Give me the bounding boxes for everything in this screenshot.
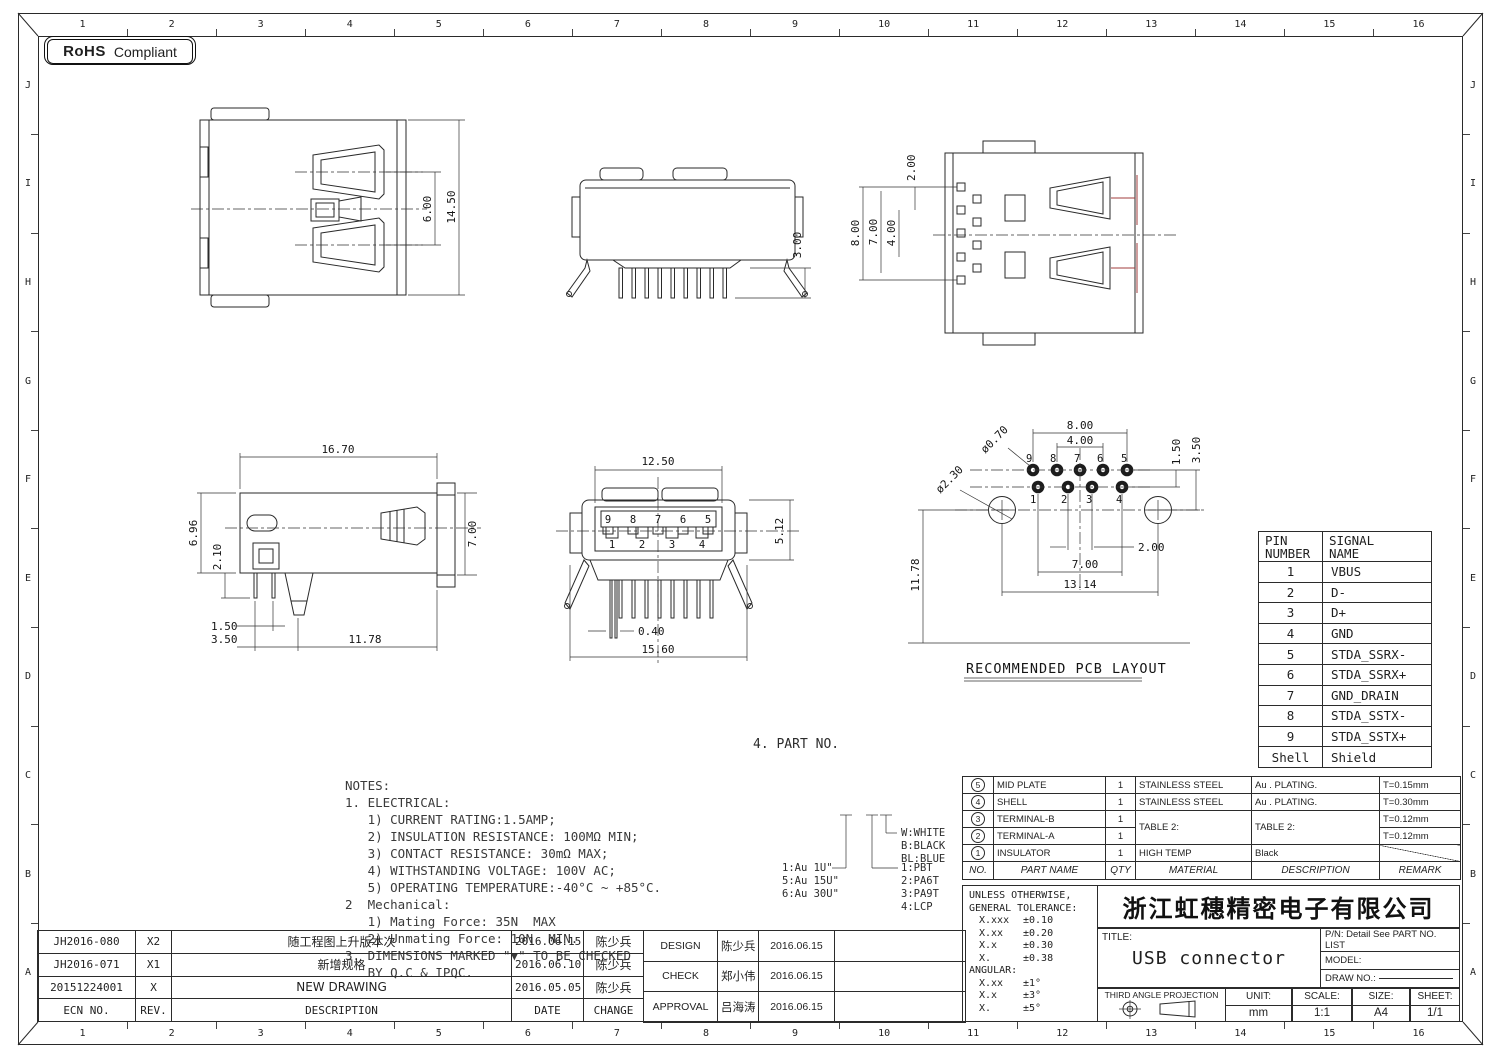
bom-name-cell: INSULATOR: [994, 845, 1106, 862]
grid-row-label: H: [1463, 233, 1483, 332]
approval-role-cell: CHECK: [644, 961, 718, 992]
note-line: NOTES:: [345, 777, 661, 794]
tolerance-row: X.xx±1°: [969, 978, 1097, 991]
dim-2.00: 2.00: [1138, 541, 1165, 554]
pin-number-cell: 3: [1259, 603, 1323, 624]
dim-16.70: 16.70: [321, 443, 354, 456]
revision-header: CHANGE: [584, 999, 644, 1022]
approval-row: APPROVAL 吕海涛 2016.06.15: [644, 992, 966, 1023]
grid-col-label: 2: [127, 13, 216, 36]
grid-row-label: E: [1463, 529, 1483, 628]
view-top-drawing: 6.00 14.50: [185, 95, 495, 350]
title-area: TITLE: USB connector: [1097, 928, 1321, 988]
approval-name-cell: 吕海涛: [718, 992, 759, 1023]
pin-label: 7: [1074, 453, 1080, 465]
signal-name-cell: GND: [1323, 623, 1432, 644]
grid-col-label: 4: [305, 1022, 394, 1045]
pin-label: 1: [1030, 494, 1036, 506]
grid-col-label: 2: [127, 1022, 216, 1045]
signal-name-cell: VBUS: [1323, 562, 1432, 583]
dim-7.00: 7.00: [466, 521, 479, 548]
dim-5.12: 5.12: [773, 518, 786, 545]
bom-no-cell: 3: [963, 811, 994, 828]
grid-col-label: 9: [751, 1022, 840, 1045]
grid-col-label: 15: [1285, 1022, 1374, 1045]
dim-0.40: 0.40: [638, 625, 665, 638]
bom-material-cell: STAINLESS STEEL: [1136, 794, 1252, 811]
grid-col-label: 3: [216, 13, 305, 36]
grid-row-label: G: [1463, 332, 1483, 431]
view-rear-drawing: 3.00: [555, 125, 825, 335]
grid-row-label: I: [18, 135, 38, 234]
side-view-body: [240, 483, 455, 615]
note-line: 3) CONTACT RESISTANCE: 30mΩ MAX;: [345, 845, 661, 862]
pcb-layout-title: RECOMMENDED PCB LAYOUT: [966, 661, 1167, 677]
dim-8.00: 8.00: [849, 220, 862, 247]
tolerance-row: X.xxx±0.10: [969, 915, 1097, 928]
bom-material-cell: STAINLESS STEEL: [1136, 777, 1252, 794]
grid-row-label: D: [18, 628, 38, 727]
approval-name-cell: 郑小伟: [718, 961, 759, 992]
grid-col-label: 6: [483, 1022, 572, 1045]
bom-name-cell: SHELL: [994, 794, 1106, 811]
revision-row: JH2016-080 X2 随工程图上升版本次 2016.06.15 陈少兵: [38, 931, 644, 954]
pin-number-cell: Shell: [1259, 747, 1323, 768]
material-option: 4:LCP: [901, 901, 933, 913]
material-option: 2:PA6T: [901, 875, 940, 887]
revision-table: JH2016-080 X2 随工程图上升版本次 2016.06.15 陈少兵 J…: [37, 930, 644, 1022]
pcb-title-underline: [964, 678, 1142, 681]
pn-row: P/N: Detail See PART NO. LIST: [1321, 929, 1459, 952]
view-side-drawing: 16.70 6.96 2.10 7.00 1.50 3.50 11.78: [185, 435, 495, 680]
signal-name-cell: STDA_SSRX-: [1323, 644, 1432, 665]
change-cell: 陈少兵: [584, 931, 644, 954]
pin-table-row: 8 STDA_SSTX-: [1259, 706, 1432, 727]
dim-3.00: 3.00: [791, 232, 804, 259]
company-name: 浙江虹穗精密电子有限公司: [1097, 885, 1460, 928]
grid-col-label: 10: [840, 13, 929, 36]
note-line: 2) INSULATION RESISTANCE: 100MΩ MIN;: [345, 828, 661, 845]
signal-name-cell: GND_DRAIN: [1323, 685, 1432, 706]
dim-12.50: 12.50: [641, 455, 674, 468]
approval-row: CHECK 郑小伟 2016.06.15: [644, 961, 966, 992]
dim-11.78: 11.78: [348, 633, 381, 646]
revision-header: DESCRIPTION: [172, 999, 512, 1022]
grid-col-label: 7: [572, 1022, 661, 1045]
approval-empty-cell: [835, 961, 966, 992]
rohs-badge: RoHS Compliant: [44, 36, 196, 65]
dim-2.10: 2.10: [211, 544, 224, 571]
ecn-no-cell: JH2016-080: [38, 931, 136, 954]
rev-cell: X: [136, 976, 172, 999]
bom-remark-diagonal: [1380, 845, 1461, 862]
rev-cell: X2: [136, 931, 172, 954]
dim-15.60: 15.60: [641, 643, 674, 656]
ecn-no-cell: 20151224001: [38, 976, 136, 999]
grid-band-bottom: 12345678910111213141516: [38, 1022, 1463, 1045]
change-cell: 陈少兵: [584, 953, 644, 976]
bom-name-cell: MID PLATE: [994, 777, 1106, 794]
grid-col-label: 14: [1196, 13, 1285, 36]
bom-desc-cell: TABLE 2:: [1252, 811, 1380, 845]
date-cell: 2016.05.05: [512, 976, 584, 999]
note-line: 4) WITHSTANDING VOLTAGE: 100V AC;: [345, 862, 661, 879]
grid-col-label: 4: [305, 13, 394, 36]
tolerance-row: X.x±0.30: [969, 940, 1097, 953]
grid-row-label: J: [1463, 36, 1483, 135]
revision-header: REV.: [136, 999, 172, 1022]
pin-number-cell: 2: [1259, 582, 1323, 603]
approval-empty-cell: [835, 992, 966, 1023]
title-label: TITLE:: [1098, 929, 1320, 943]
grid-col-label: 16: [1374, 1022, 1463, 1045]
description-cell: 新增规格: [172, 953, 512, 976]
ecn-no-cell: JH2016-071: [38, 953, 136, 976]
approval-name-cell: 陈少兵: [718, 931, 759, 962]
grid-row-label: F: [18, 430, 38, 529]
grid-row-label: D: [1463, 628, 1483, 727]
revision-header: DATE: [512, 999, 584, 1022]
dim-7.00: 7.00: [867, 219, 880, 246]
tolerance-line: UNLESS OTHERWISE,: [969, 890, 1097, 903]
note-line: 1) CURRENT RATING:1.5AMP;: [345, 811, 661, 828]
dim-2.00: 2.00: [905, 155, 918, 182]
view-bottom-drawing: 8.00 7.00 4.00 2.00: [845, 125, 1185, 355]
bom-material-cell: TABLE 2:: [1136, 811, 1252, 845]
scale-label: SCALE:: [1293, 989, 1351, 1006]
grid-col-label: 11: [929, 13, 1018, 36]
tolerance-row: X.±5°: [969, 1003, 1097, 1016]
bom-header: REMARK: [1380, 862, 1461, 879]
revision-header: ECN NO.: [38, 999, 136, 1022]
pcb-pin-numbers: 9 8 7 6 5 1 2 3 4: [1026, 453, 1127, 506]
grid-row-label: A: [1463, 923, 1483, 1022]
bom-qty-cell: 1: [1106, 794, 1136, 811]
bottom-view-red-lines: [1111, 175, 1137, 293]
grid-col-label: 5: [394, 13, 483, 36]
bom-header: NO.: [963, 862, 994, 879]
bom-name-cell: TERMINAL-A: [994, 828, 1106, 845]
bom-remark-cell: T=0.12mm: [1380, 811, 1461, 828]
size-cell: SIZE: A4: [1352, 988, 1410, 1022]
date-cell: 2016.06.10: [512, 953, 584, 976]
pin-number-header: PINNUMBER: [1259, 532, 1323, 562]
pin-number-cell: 1: [1259, 562, 1323, 583]
plating-option: 6:Au 30U": [782, 888, 839, 900]
pin-number-cell: 9: [1259, 726, 1323, 747]
pin-label: 4: [699, 539, 705, 551]
bom-desc-cell: Au . PLATING.: [1252, 794, 1380, 811]
revision-row: 20151224001 X NEW DRAWING 2016.05.05 陈少兵: [38, 976, 644, 999]
tolerance-block: UNLESS OTHERWISE, GENERAL TOLERANCE: X.x…: [962, 885, 1098, 1022]
approval-date-cell: 2016.06.15: [759, 931, 835, 962]
bom-remark-cell: T=0.30mm: [1380, 794, 1461, 811]
grid-col-label: 6: [483, 13, 572, 36]
pin-number-cell: 7: [1259, 685, 1323, 706]
part-no-tree: 1:Au 1U" 5:Au 15U" 6:Au 30U" W:WHITE B:B…: [780, 800, 970, 925]
bom-qty-cell: 1: [1106, 811, 1136, 828]
grid-row-label: H: [18, 233, 38, 332]
front-view-body: [565, 488, 753, 638]
drawing-sheet: 12345678910111213141516 1234567891011121…: [0, 0, 1502, 1059]
part-no-tree-labels: 1:Au 1U" 5:Au 15U" 6:Au 30U" W:WHITE B:B…: [782, 827, 946, 913]
grid-col-label: 10: [840, 1022, 929, 1045]
tolerance-line: GENERAL TOLERANCE:: [969, 903, 1097, 916]
tolerance-row: X.±0.38: [969, 953, 1097, 966]
pcb-leaders: [960, 448, 1030, 519]
pin-label: 5: [705, 514, 711, 526]
signal-name-header: SIGNALNAME: [1323, 532, 1432, 562]
scale-cell: SCALE: 1:1: [1292, 988, 1352, 1022]
bom-qty-cell: 1: [1106, 777, 1136, 794]
pin-table-row: 6 STDA_SSRX+: [1259, 664, 1432, 685]
pin-label: 2: [639, 539, 645, 551]
grid-col-label: 3: [216, 1022, 305, 1045]
dim-4.00: 4.00: [885, 220, 898, 247]
note-line: 2 Mechanical:: [345, 896, 661, 913]
label-dia-2.30: ø2.30: [933, 463, 966, 496]
pin-label: 9: [605, 514, 611, 526]
grid-band-left: JIHGFEDCBA: [18, 36, 38, 1022]
view-pcb-layout: 9 8 7 6 5 1 2 3 4: [900, 400, 1240, 690]
approval-row: DESIGN 陈少兵 2016.06.15: [644, 931, 966, 962]
grid-col-label: 1: [38, 1022, 127, 1045]
projection-label: THIRD ANGLE PROJECTION: [1098, 989, 1225, 1000]
front-view-centerlines: [556, 477, 802, 663]
rev-cell: X1: [136, 953, 172, 976]
pin-number-cell: 8: [1259, 706, 1323, 727]
pin-label: 8: [1050, 453, 1056, 465]
pin-table-row: 5 STDA_SSRX-: [1259, 644, 1432, 665]
pin-table-row: 3 D+: [1259, 603, 1432, 624]
grid-row-label: J: [18, 36, 38, 135]
signal-name-cell: STDA_SSTX-: [1323, 706, 1432, 727]
dim-13.14: 13.14: [1063, 578, 1096, 591]
dim-7.00: 7.00: [1072, 558, 1099, 571]
approval-date-cell: 2016.06.15: [759, 961, 835, 992]
dim-4.00: 4.00: [1067, 434, 1094, 447]
bom-remark-cell: T=0.12mm: [1380, 828, 1461, 845]
size-value: A4: [1353, 1006, 1409, 1022]
pin-number-cell: 6: [1259, 664, 1323, 685]
projection-cell: THIRD ANGLE PROJECTION: [1097, 988, 1226, 1022]
plating-option: 5:Au 15U": [782, 875, 839, 887]
bom-desc-cell: Black: [1252, 845, 1380, 862]
pin-label: 3: [1086, 494, 1092, 506]
material-option: 3:PA9T: [901, 888, 940, 900]
dim-14.50: 14.50: [445, 190, 458, 223]
bom-material-cell: HIGH TEMP: [1136, 845, 1252, 862]
bom-name-cell: TERMINAL-B: [994, 811, 1106, 828]
bom-header: PART NAME: [994, 862, 1106, 879]
bom-no-cell: 1: [963, 845, 994, 862]
grid-col-label: 12: [1018, 1022, 1107, 1045]
grid-row-label: B: [1463, 825, 1483, 924]
pin-label: 3: [669, 539, 675, 551]
revision-header-row: ECN NO. REV. DESCRIPTION DATE CHANGE: [38, 999, 644, 1022]
size-label: SIZE:: [1353, 989, 1409, 1006]
grid-col-label: 5: [394, 1022, 483, 1045]
bom-desc-cell: Au . PLATING.: [1252, 777, 1380, 794]
bom-header: MATERIAL: [1136, 862, 1252, 879]
color-option: W:WHITE: [901, 827, 945, 839]
pin-label: 8: [630, 514, 636, 526]
revision-row: JH2016-071 X1 新增规格 2016.06.10 陈少兵: [38, 953, 644, 976]
unit-cell: UNIT: mm: [1225, 988, 1292, 1022]
bom-header-row: NO. PART NAME QTY MATERIAL DESCRIPTION R…: [963, 862, 1461, 879]
pin-signal-table: PINNUMBER SIGNALNAME 1 VBUS 2 D- 3 D+ 4 …: [1258, 531, 1432, 768]
dim-6.96: 6.96: [187, 520, 200, 547]
third-angle-projection-symbol: [1098, 1000, 1225, 1020]
part-no-heading: 4. PART NO.: [753, 737, 839, 752]
approval-empty-cell: [835, 931, 966, 962]
grid-col-label: 16: [1374, 13, 1463, 36]
pin-table-row: 9 STDA_SSTX+: [1259, 726, 1432, 747]
dim-1.50: 1.50: [211, 620, 238, 633]
bom-qty-cell: 1: [1106, 828, 1136, 845]
pin-table-row: 2 D-: [1259, 582, 1432, 603]
bom-header: DESCRIPTION: [1252, 862, 1380, 879]
approval-role-cell: DESIGN: [644, 931, 718, 962]
bom-table: 5 MID PLATE 1 STAINLESS STEEL Au . PLATI…: [962, 776, 1461, 880]
tolerance-row: X.x±3°: [969, 990, 1097, 1003]
grid-col-label: 13: [1107, 1022, 1196, 1045]
signal-name-cell: Shield: [1323, 747, 1432, 768]
pin-label: 4: [1116, 494, 1122, 506]
grid-col-label: 8: [661, 13, 750, 36]
grid-band-top: 12345678910111213141516: [38, 13, 1463, 36]
top-view-centerlines: [191, 172, 427, 245]
signal-name-cell: STDA_SSRX+: [1323, 664, 1432, 685]
grid-col-label: 14: [1196, 1022, 1285, 1045]
approval-date-cell: 2016.06.15: [759, 992, 835, 1023]
grid-row-label: E: [18, 529, 38, 628]
color-option: B:BLACK: [901, 840, 946, 852]
rohs-text: Compliant: [114, 44, 177, 60]
grid-row-label: I: [1463, 135, 1483, 234]
scale-value: 1:1: [1293, 1006, 1351, 1022]
grid-col-label: 1: [38, 13, 127, 36]
pin-label: 9: [1026, 453, 1032, 465]
pin-table-row: 4 GND: [1259, 623, 1432, 644]
bom-row: 1 INSULATOR 1 HIGH TEMP Black: [963, 845, 1461, 862]
change-cell: 陈少兵: [584, 976, 644, 999]
side-view-dimension-lines: [197, 453, 477, 651]
approvals-table: DESIGN 陈少兵 2016.06.15 CHECK 郑小伟 2016.06.…: [643, 930, 966, 1023]
grid-row-label: F: [1463, 430, 1483, 529]
bom-qty-cell: 1: [1106, 845, 1136, 862]
grid-row-label: A: [18, 923, 38, 1022]
front-view-dimension-lines: [570, 466, 794, 661]
note-line: 5) OPERATING TEMPERATURE:-40°C ~ +85°C.: [345, 879, 661, 896]
signal-name-cell: D-: [1323, 582, 1432, 603]
dim-6.00: 6.00: [421, 196, 434, 223]
dim-8.00: 8.00: [1067, 419, 1094, 432]
material-option: 1:PBT: [901, 862, 933, 874]
dim-3.50: 3.50: [211, 633, 238, 646]
rear-view-body: [567, 168, 808, 298]
grid-col-label: 15: [1285, 13, 1374, 36]
grid-col-label: 13: [1107, 13, 1196, 36]
model-row: MODEL:: [1321, 952, 1459, 970]
sheet-value: 1/1: [1411, 1006, 1459, 1022]
pin-table-header-row: PINNUMBER SIGNALNAME: [1259, 532, 1432, 562]
bom-header: QTY: [1106, 862, 1136, 879]
bom-row: 5 MID PLATE 1 STAINLESS STEEL Au . PLATI…: [963, 777, 1461, 794]
signal-name-cell: STDA_SSTX+: [1323, 726, 1432, 747]
unit-value: mm: [1226, 1006, 1291, 1022]
pin-table-row: Shell Shield: [1259, 747, 1432, 768]
dim-1.50: 1.50: [1170, 439, 1183, 466]
sheet-label: SHEET:: [1411, 989, 1459, 1006]
grid-col-label: 7: [572, 13, 661, 36]
angular-label: ANGULAR:: [969, 965, 1097, 978]
description-cell: 随工程图上升版本次: [172, 931, 512, 954]
dim-3.50: 3.50: [1190, 437, 1203, 464]
part-number-column: P/N: Detail See PART NO. LIST MODEL: DRA…: [1320, 928, 1460, 988]
grid-row-label: C: [1463, 726, 1483, 825]
pin-label: 6: [680, 514, 686, 526]
date-cell: 2016.06.15: [512, 931, 584, 954]
pin-table-row: 7 GND_DRAIN: [1259, 685, 1432, 706]
plating-option: 1:Au 1U": [782, 862, 833, 874]
bom-remark-cell: T=0.15mm: [1380, 777, 1461, 794]
pin-number-cell: 4: [1259, 623, 1323, 644]
grid-row-label: G: [18, 332, 38, 431]
draw-no-blank-line: [1379, 978, 1453, 979]
drawing-title: USB connector: [1098, 948, 1320, 969]
description-cell: NEW DRAWING: [172, 976, 512, 999]
grid-row-label: B: [18, 825, 38, 924]
grid-col-label: 12: [1018, 13, 1107, 36]
bom-no-cell: 4: [963, 794, 994, 811]
pin-number-cell: 5: [1259, 644, 1323, 665]
pin-label: 7: [655, 514, 661, 526]
view-front-drawing: 9 8 7 6 5 1 2 3 4 12.50 5.12 0.40 15.60: [550, 445, 810, 680]
part-no-tree-lines: [832, 815, 898, 868]
unit-label: UNIT:: [1226, 989, 1291, 1006]
bom-no-cell: 5: [963, 777, 994, 794]
grid-col-label: 8: [661, 1022, 750, 1045]
pin-label: 6: [1097, 453, 1103, 465]
bom-row: 4 SHELL 1 STAINLESS STEEL Au . PLATING. …: [963, 794, 1461, 811]
sheet-cell: SHEET: 1/1: [1410, 988, 1460, 1022]
bottom-view-body: [945, 141, 1143, 345]
label-dia-0.70: ø0.70: [978, 423, 1011, 456]
note-line: 1) Mating Force: 35N MAX: [345, 913, 661, 930]
signal-name-cell: D+: [1323, 603, 1432, 624]
bom-row: 3 TERMINAL-B 1 TABLE 2: TABLE 2: T=0.12m…: [963, 811, 1461, 828]
pin-label: 2: [1061, 494, 1067, 506]
dim-11.78: 11.78: [909, 558, 922, 591]
approval-role-cell: APPROVAL: [644, 992, 718, 1023]
tolerance-row: X.xx±0.20: [969, 928, 1097, 941]
pin-label: 5: [1121, 453, 1127, 465]
grid-col-label: 9: [751, 13, 840, 36]
top-view-body: [200, 108, 406, 307]
grid-band-right: JIHGFEDCBA: [1463, 36, 1483, 1022]
note-line: 1. ELECTRICAL:: [345, 794, 661, 811]
grid-row-label: C: [18, 726, 38, 825]
pin-table-row: 1 VBUS: [1259, 562, 1432, 583]
rohs-bold-text: RoHS: [63, 43, 106, 60]
draw-no-row: DRAW NO.:: [1321, 970, 1459, 987]
bom-no-cell: 2: [963, 828, 994, 845]
pin-label: 1: [609, 539, 615, 551]
grid-col-label: 11: [929, 1022, 1018, 1045]
